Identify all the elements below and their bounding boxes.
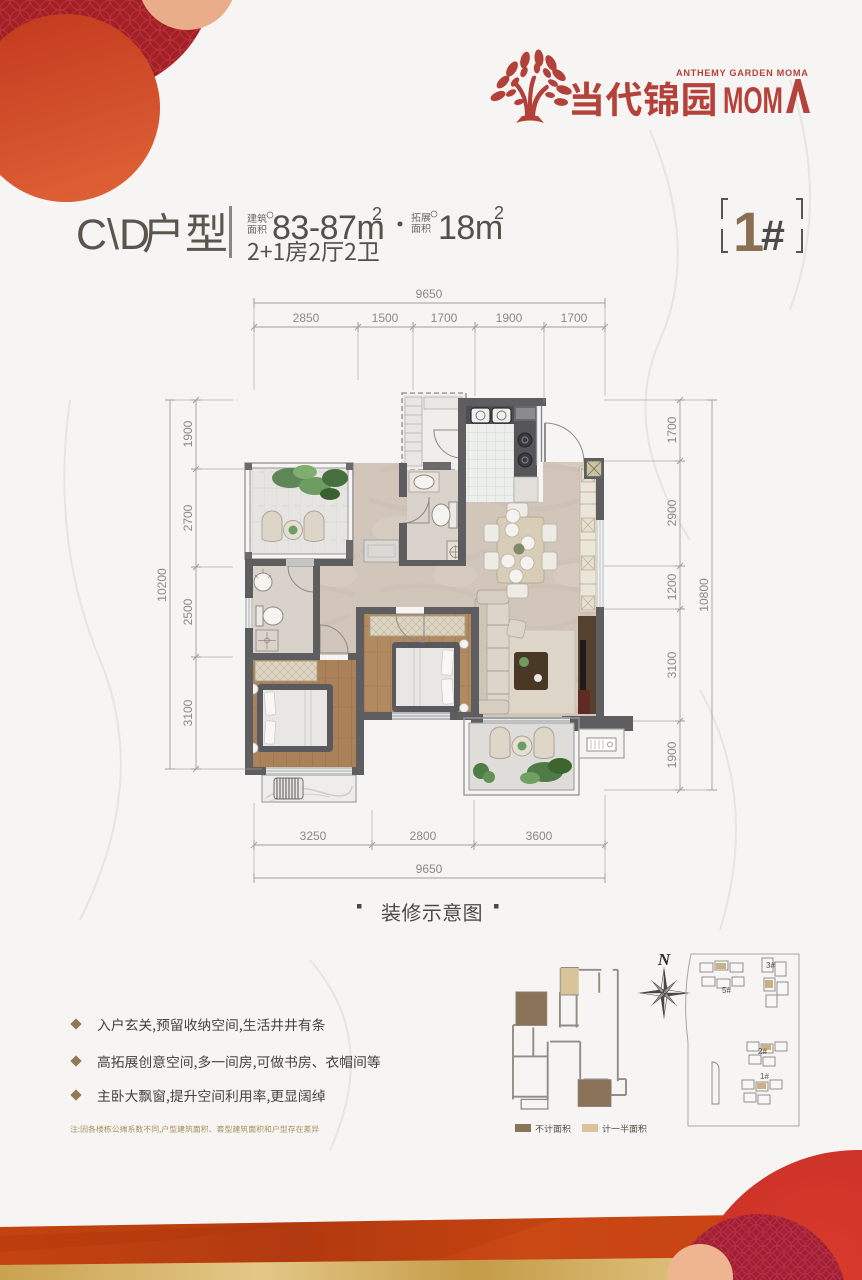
svg-text:2#: 2# (758, 1047, 767, 1056)
svg-text:MOM: MOM (723, 80, 783, 121)
svg-text:2700: 2700 (181, 504, 195, 531)
svg-text:1700: 1700 (561, 311, 588, 325)
svg-text:3#: 3# (766, 961, 775, 970)
svg-text:3100: 3100 (181, 699, 195, 726)
svg-text:2: 2 (494, 203, 504, 223)
svg-text:C\D: C\D (76, 211, 150, 259)
svg-text:N: N (657, 950, 671, 969)
svg-text:3100: 3100 (665, 651, 679, 678)
svg-text:#: # (761, 212, 785, 260)
svg-text:10200: 10200 (155, 568, 169, 602)
svg-text:3600: 3600 (526, 829, 553, 843)
svg-text:9650: 9650 (416, 287, 443, 301)
svg-text:1#: 1# (760, 1072, 769, 1081)
svg-text:2: 2 (372, 204, 382, 224)
svg-text:5#: 5# (722, 986, 731, 995)
svg-text:1900: 1900 (496, 311, 523, 325)
svg-text:83-87m: 83-87m (272, 209, 384, 247)
svg-text:2500: 2500 (181, 598, 195, 625)
svg-text:1: 1 (733, 200, 764, 263)
svg-text:1900: 1900 (181, 420, 195, 447)
svg-text:1200: 1200 (665, 573, 679, 600)
svg-text:2850: 2850 (293, 311, 320, 325)
svg-text:1700: 1700 (665, 416, 679, 443)
svg-text:3250: 3250 (300, 829, 327, 843)
svg-text:18m: 18m (438, 209, 503, 247)
svg-text:ANTHEMY GARDEN MOMA: ANTHEMY GARDEN MOMA (676, 68, 809, 78)
svg-text:2900: 2900 (665, 499, 679, 526)
svg-text:1900: 1900 (665, 741, 679, 768)
svg-text:2800: 2800 (410, 829, 437, 843)
svg-text:9650: 9650 (416, 862, 443, 876)
svg-text:1700: 1700 (431, 311, 458, 325)
svg-text:10800: 10800 (697, 578, 711, 612)
svg-text:1500: 1500 (372, 311, 399, 325)
